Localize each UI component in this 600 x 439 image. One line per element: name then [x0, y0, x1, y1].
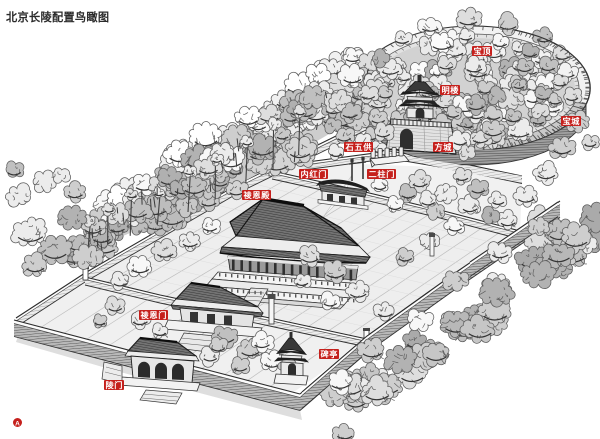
svg-text:明楼: 明楼 — [442, 85, 460, 95]
svg-text:碑亭: 碑亭 — [321, 349, 338, 359]
svg-text:石五供: 石五供 — [345, 142, 373, 152]
svg-text:宝城: 宝城 — [563, 116, 581, 126]
svg-text:陵门: 陵门 — [106, 380, 123, 390]
svg-text:祾恩殿: 祾恩殿 — [244, 190, 271, 200]
svg-text:北京长陵配置鸟瞰图: 北京长陵配置鸟瞰图 — [6, 10, 109, 24]
svg-text:A: A — [15, 420, 20, 427]
svg-text:祾恩门: 祾恩门 — [141, 310, 167, 320]
svg-text:方城: 方城 — [435, 142, 453, 152]
svg-text:二柱门: 二柱门 — [369, 169, 395, 179]
svg-text:内红门: 内红门 — [301, 169, 327, 179]
svg-text:宝顶: 宝顶 — [474, 46, 492, 56]
